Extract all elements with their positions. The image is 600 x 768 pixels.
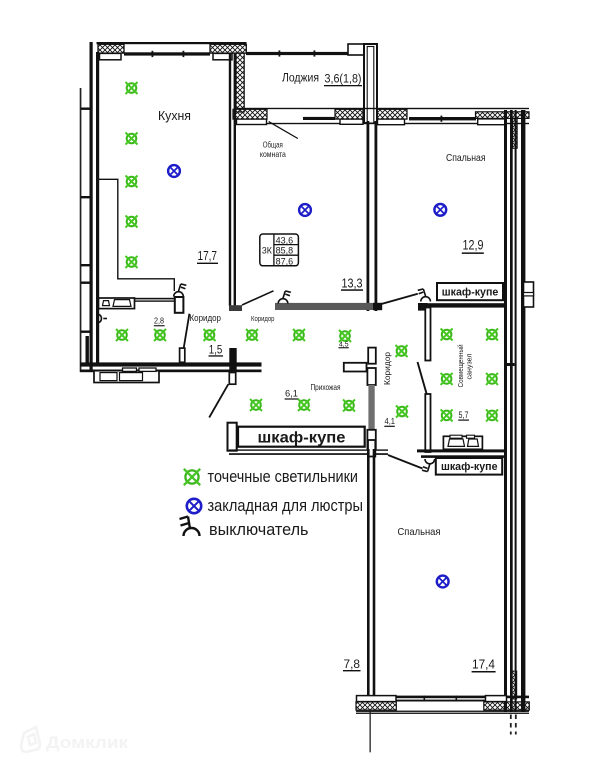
svg-text:12,9: 12,9 <box>463 238 484 253</box>
svg-text:6,1: 6,1 <box>285 388 298 399</box>
svg-text:Прихожая: Прихожая <box>311 382 341 392</box>
svg-text:Лоджия: Лоджия <box>282 73 319 85</box>
svg-text:шкаф-купе: шкаф-купе <box>441 461 498 473</box>
svg-text:шкаф-купе: шкаф-купе <box>258 430 346 447</box>
svg-text:Коридор: Коридор <box>382 352 392 385</box>
svg-text:санузел: санузел <box>467 354 474 380</box>
svg-text:1,5: 1,5 <box>209 342 223 356</box>
svg-text:87,6: 87,6 <box>276 257 294 267</box>
svg-text:4,1: 4,1 <box>385 416 396 426</box>
svg-text:3К: 3К <box>262 246 273 256</box>
svg-text:закладная для люстры: закладная для люстры <box>208 496 364 515</box>
svg-text:Коридор: Коридор <box>190 313 222 323</box>
svg-text:2,8: 2,8 <box>154 315 164 325</box>
svg-text:выключатель: выключатель <box>209 520 309 539</box>
svg-text:Совмещенный: Совмещенный <box>457 344 465 387</box>
svg-text:85,8: 85,8 <box>276 246 294 256</box>
svg-text:Общая: Общая <box>263 139 283 149</box>
svg-text:комната: комната <box>260 149 286 159</box>
svg-text:Спальная: Спальная <box>446 152 486 164</box>
svg-text:Кухня: Кухня <box>158 109 191 123</box>
svg-text:17,4: 17,4 <box>472 658 495 672</box>
svg-text:точечные светильники: точечные светильники <box>208 467 359 486</box>
svg-text:17,7: 17,7 <box>198 248 218 263</box>
svg-text:13,3: 13,3 <box>342 276 363 291</box>
svg-text:Домклик: Домклик <box>46 733 129 752</box>
svg-text:3,6(1,8): 3,6(1,8) <box>325 74 362 86</box>
svg-text:43,6: 43,6 <box>276 235 294 245</box>
svg-text:7,8: 7,8 <box>344 659 361 671</box>
svg-text:5,7: 5,7 <box>459 410 469 421</box>
svg-text:шкаф-купе: шкаф-купе <box>442 286 499 298</box>
svg-text:Спальная: Спальная <box>398 526 441 538</box>
svg-text:Коридор: Коридор <box>251 314 275 323</box>
